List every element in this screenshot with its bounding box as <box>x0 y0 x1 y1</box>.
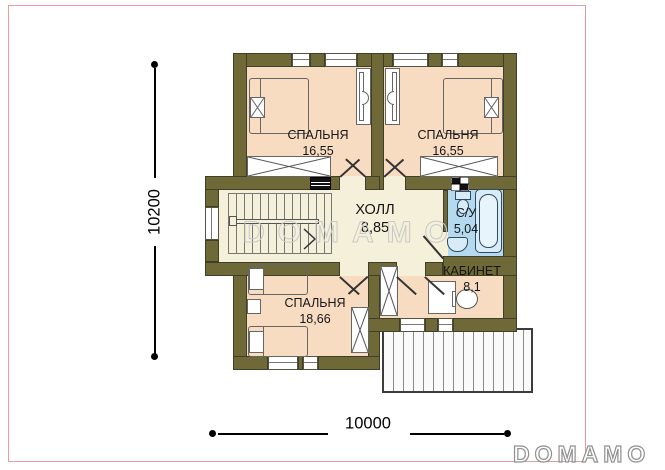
doorway-floor <box>397 262 425 276</box>
built-in-closet <box>356 68 371 125</box>
dimension-height-label: 10200 <box>146 189 165 235</box>
stair-newel <box>229 216 237 226</box>
dimension-dot <box>209 430 216 437</box>
window <box>393 53 428 67</box>
window <box>268 356 298 370</box>
shelf <box>247 299 261 314</box>
wall-segment <box>310 53 325 67</box>
dimension-line <box>154 68 156 178</box>
dimension-line <box>154 246 156 354</box>
wall-segment <box>233 262 247 370</box>
wall-segment <box>318 356 380 370</box>
label-bedroom-bottom: СПАЛЬНЯ18,66 <box>284 296 345 327</box>
brand-logo: DOMAMO <box>513 441 650 468</box>
doorway-floor <box>384 176 405 190</box>
nightstand <box>250 97 265 118</box>
window <box>292 53 310 67</box>
wall-segment <box>428 53 442 67</box>
wall-segment <box>233 53 247 190</box>
label-bedroom-top-right: СПАЛЬНЯ16,55 <box>417 128 478 159</box>
wall-segment <box>368 318 400 332</box>
window <box>205 207 219 240</box>
wall-segment <box>503 53 517 332</box>
balcony-door <box>400 318 425 332</box>
electrical-panel <box>310 177 331 190</box>
wardrobe <box>380 266 398 316</box>
dimension-dot <box>151 353 158 360</box>
wardrobe <box>351 307 369 353</box>
label-office: КАБИНЕТ8,1 <box>443 264 501 295</box>
window <box>438 318 453 332</box>
built-in-closet <box>385 68 400 125</box>
dimension-dot <box>151 61 158 68</box>
nightstand <box>249 268 264 290</box>
wall-segment <box>233 356 268 370</box>
label-bedroom-top-left: СПАЛЬНЯ16,55 <box>287 128 348 159</box>
window <box>442 53 458 67</box>
wall-segment <box>425 318 438 332</box>
wall-segment <box>425 262 443 276</box>
watermark-text: DOMAMO <box>243 216 461 250</box>
window <box>303 356 318 370</box>
bathtub <box>475 189 502 253</box>
dimension-line <box>218 433 328 435</box>
doorway-floor <box>340 176 365 190</box>
dimension-dot <box>504 430 511 437</box>
wall-partition <box>368 262 380 370</box>
wall-segment <box>205 240 219 262</box>
wall-segment <box>453 318 517 332</box>
dimension-line <box>410 433 504 435</box>
floor-plan-page: 10200 10000 СПАЛЬНЯ16,55 СПАЛЬНЯ16,55 ХО… <box>0 0 665 470</box>
balcony-deck <box>382 328 533 393</box>
nightstand <box>249 331 264 353</box>
vent-shaft-icon <box>451 177 469 191</box>
doorway-floor <box>340 262 368 276</box>
dimension-width-label: 10000 <box>345 415 391 434</box>
nightstand <box>484 97 499 118</box>
wall-partition <box>371 53 384 190</box>
wall-segment <box>365 176 380 190</box>
window <box>325 53 357 67</box>
